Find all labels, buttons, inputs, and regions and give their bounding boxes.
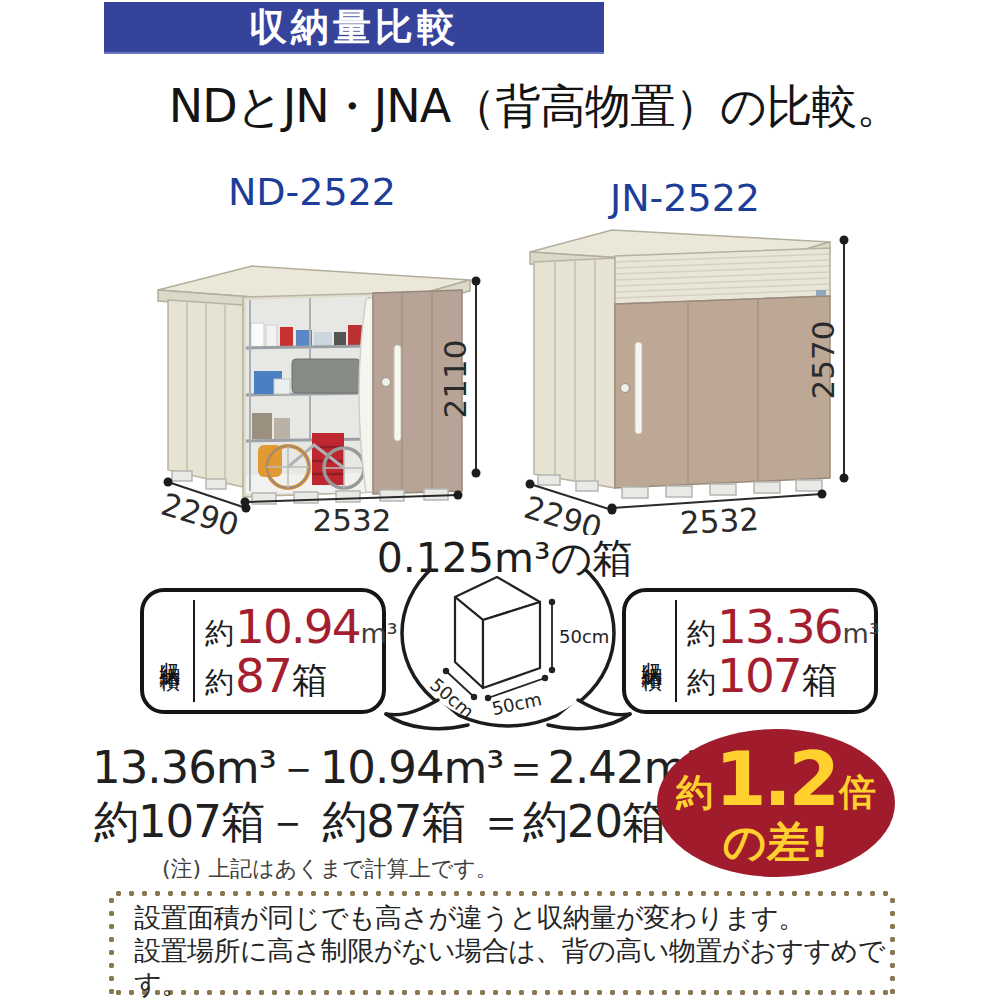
badge-value: 1.2 bbox=[713, 736, 839, 822]
title-banner: 収納量比較 bbox=[104, 2, 604, 54]
title-banner-text: 収納量比較 bbox=[249, 2, 459, 53]
jn-door bbox=[615, 296, 830, 488]
stat-vertical-label: 収納体積 bbox=[156, 600, 195, 702]
approx-prefix: 約 bbox=[687, 618, 716, 648]
storage-stat-card-jn: 収納体積 約 13.36 m³ 約 107 箱 bbox=[622, 588, 878, 714]
difference-badge-line1: 約 1.2 倍 bbox=[676, 736, 876, 822]
badge-suffix: 倍 bbox=[839, 768, 876, 818]
approx-prefix: 約 bbox=[205, 667, 234, 697]
model-label-nd: ND-2522 bbox=[202, 170, 422, 214]
jn-door-handle bbox=[635, 342, 642, 434]
nd-boxes-row: 約 87 箱 bbox=[205, 651, 398, 700]
nd-door-lock bbox=[382, 378, 391, 387]
cube-illustration bbox=[455, 577, 540, 688]
nd-boxes-value: 87 bbox=[234, 651, 292, 700]
jn-boxes-row: 約 107 箱 bbox=[687, 651, 880, 700]
nd-door-handle bbox=[394, 345, 401, 441]
jn-boxes-value: 107 bbox=[716, 651, 802, 700]
approx-prefix: 約 bbox=[687, 667, 716, 697]
footer-note-box: 設置面積が同じでも高さが違うと収納量が変わります。 設置場所に高さ制限がない場合… bbox=[108, 890, 896, 996]
footer-note-line: 設置面積が同じでも高さが違うと収納量が変わります。 bbox=[134, 902, 888, 935]
difference-badge: 約 1.2 倍 の差! bbox=[657, 729, 895, 877]
nd-volume-row: 約 10.94 m³ bbox=[205, 602, 398, 651]
jn-shutter-latch bbox=[816, 290, 826, 296]
footer-note-line: 設置場所に高さ制限がない場合は、背の高い物置がおすすめです。 bbox=[134, 935, 888, 1000]
volume-unit: m³ bbox=[361, 620, 398, 648]
nd-dim-depth-label: 2290 bbox=[157, 486, 243, 543]
difference-badge-line2: の差! bbox=[723, 814, 830, 872]
calc-line-boxes: 約107箱－ 約87箱 ＝約20箱 bbox=[92, 792, 668, 852]
boxes-unit: 箱 bbox=[802, 661, 838, 699]
nd-dim-height-label: 2110 bbox=[437, 340, 473, 419]
badge-prefix: 約 bbox=[676, 768, 713, 818]
stat-vertical-label: 収納体積 bbox=[638, 600, 677, 702]
cube-dim-height-label: 50cm bbox=[559, 626, 609, 647]
storage-stat-card-nd: 収納体積 約 10.94 m³ 約 87 箱 bbox=[140, 588, 386, 714]
jn-dim-width-label: 2532 bbox=[679, 501, 760, 541]
jn-door-lock bbox=[621, 384, 630, 393]
nd-volume-value: 10.94 bbox=[234, 602, 361, 651]
jn-dim-height-label: 2570 bbox=[805, 321, 841, 400]
shed-illustration-jn: 2570 2532 2290 bbox=[500, 210, 900, 545]
jn-volume-row: 約 13.36 m³ bbox=[687, 602, 880, 651]
volume-unit: m³ bbox=[843, 620, 880, 648]
page-heading: NDとJN・JNA（背高物置）の比較。 bbox=[70, 76, 1000, 138]
jn-volume-value: 13.36 bbox=[716, 602, 843, 651]
shed-illustration-nd: 2110 2532 2290 bbox=[140, 233, 510, 545]
box-callout-title: 0.125m³の箱 bbox=[355, 531, 655, 586]
nd-dim-depth: 2290 bbox=[157, 478, 250, 544]
infographic-canvas: 収納量比較 NDとJN・JNA（背高物置）の比較。 ND-2522 JN-252… bbox=[0, 0, 1000, 1000]
calc-line-volume: 13.36m³－10.94m³＝2.42m³ bbox=[92, 738, 668, 798]
calc-note: (注) 上記はあくまで計算上です。 bbox=[162, 854, 498, 884]
approx-prefix: 約 bbox=[205, 618, 234, 648]
boxes-unit: 箱 bbox=[292, 661, 328, 699]
